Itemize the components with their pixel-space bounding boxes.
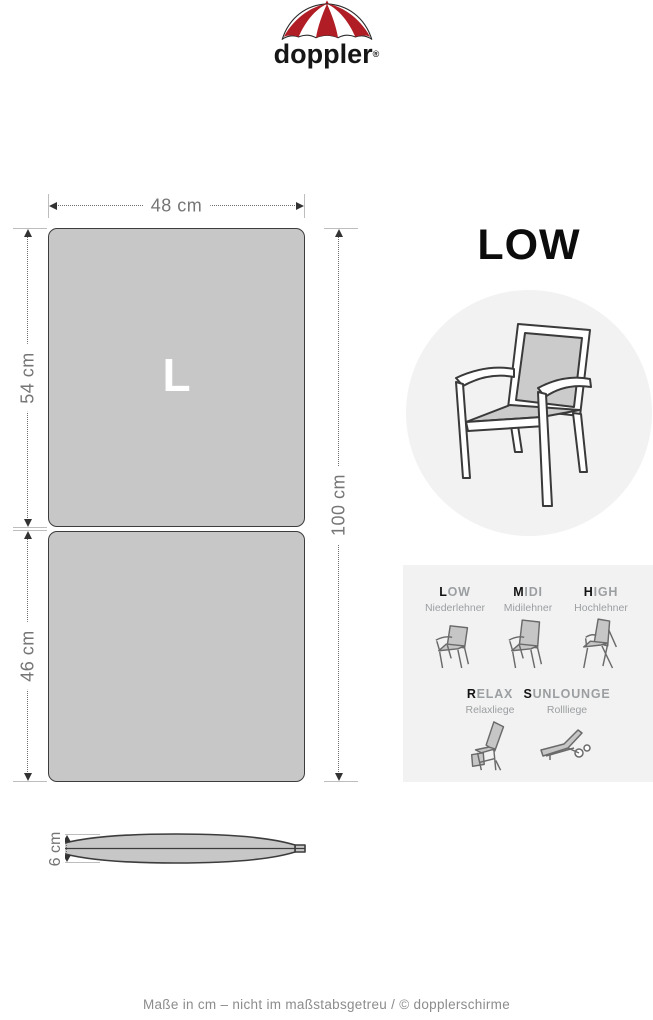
variant-low: LOW Niederlehner: [415, 585, 495, 677]
arrow-left-icon: [49, 202, 57, 210]
variant-title: LOW: [415, 585, 495, 599]
chair-high-icon: [578, 618, 624, 672]
product-dimension-sheet: doppler® 48 cm L 54 cm 46 cm 100 cm: [0, 0, 653, 1020]
variant-title: RELAX: [448, 687, 532, 701]
product-title: LOW: [412, 224, 646, 267]
variant-subtitle: Midilehner: [488, 602, 568, 614]
doppler-wordmark: doppler®: [0, 41, 653, 68]
registered-mark: ®: [373, 49, 380, 59]
variant-title: MIDI: [488, 585, 568, 599]
variant-subtitle: Hochlehner: [561, 602, 641, 614]
variant-high: HIGH Hochlehner: [561, 585, 641, 677]
cushion-seat-section: [48, 531, 305, 782]
dimension-bottom-section: 46 cm: [16, 530, 40, 782]
dimension-tick: [13, 527, 47, 528]
size-letter: L: [48, 352, 305, 398]
arrow-up-icon: [335, 229, 343, 237]
chair-relax-icon: [465, 720, 515, 774]
arrow-up-icon: [24, 531, 32, 539]
dimension-width: 48 cm: [48, 194, 305, 218]
variant-title: HIGH: [561, 585, 641, 599]
variant-title: SUNLOUNGE: [521, 687, 613, 701]
arrow-down-icon: [24, 519, 32, 527]
doppler-umbrella-icon: [279, 0, 375, 44]
dimension-tick: [324, 781, 358, 782]
dimension-tick: [304, 194, 305, 218]
dimension-top-label: 54 cm: [18, 344, 39, 412]
sunlounge-icon: [538, 720, 596, 766]
doppler-logo: doppler®: [0, 0, 653, 72]
dimension-bottom-label: 46 cm: [18, 622, 39, 690]
dimension-tick: [13, 781, 47, 782]
dimension-top-section: 54 cm: [16, 228, 40, 528]
arrow-up-icon: [24, 229, 32, 237]
dimension-total-label: 100 cm: [329, 466, 350, 544]
variant-midi: MIDI Midilehner: [488, 585, 568, 677]
variant-subtitle: Relaxliege: [448, 704, 532, 716]
arrow-right-icon: [296, 202, 304, 210]
variant-relax: RELAX Relaxliege: [448, 687, 532, 779]
arrow-down-icon: [24, 773, 32, 781]
dimension-width-label: 48 cm: [143, 196, 211, 217]
variants-panel: LOW Niederlehner MIDI Midilehner: [403, 565, 653, 782]
dimension-total-height: 100 cm: [327, 228, 351, 782]
footer-note: Maße in cm – nicht im maßstabsgetreu / ©…: [0, 997, 653, 1012]
low-armchair-icon: [443, 320, 605, 520]
chair-midi-icon: [505, 618, 551, 672]
chair-low-icon: [432, 618, 478, 672]
variant-sunlounge: SUNLOUNGE Rollliege: [521, 687, 613, 771]
arrow-down-icon: [335, 773, 343, 781]
dimension-thickness-label: 6 cm: [26, 834, 86, 863]
variant-subtitle: Niederlehner: [415, 602, 495, 614]
dimension-thickness: 6 cm: [54, 834, 100, 863]
variant-subtitle: Rollliege: [521, 704, 613, 716]
